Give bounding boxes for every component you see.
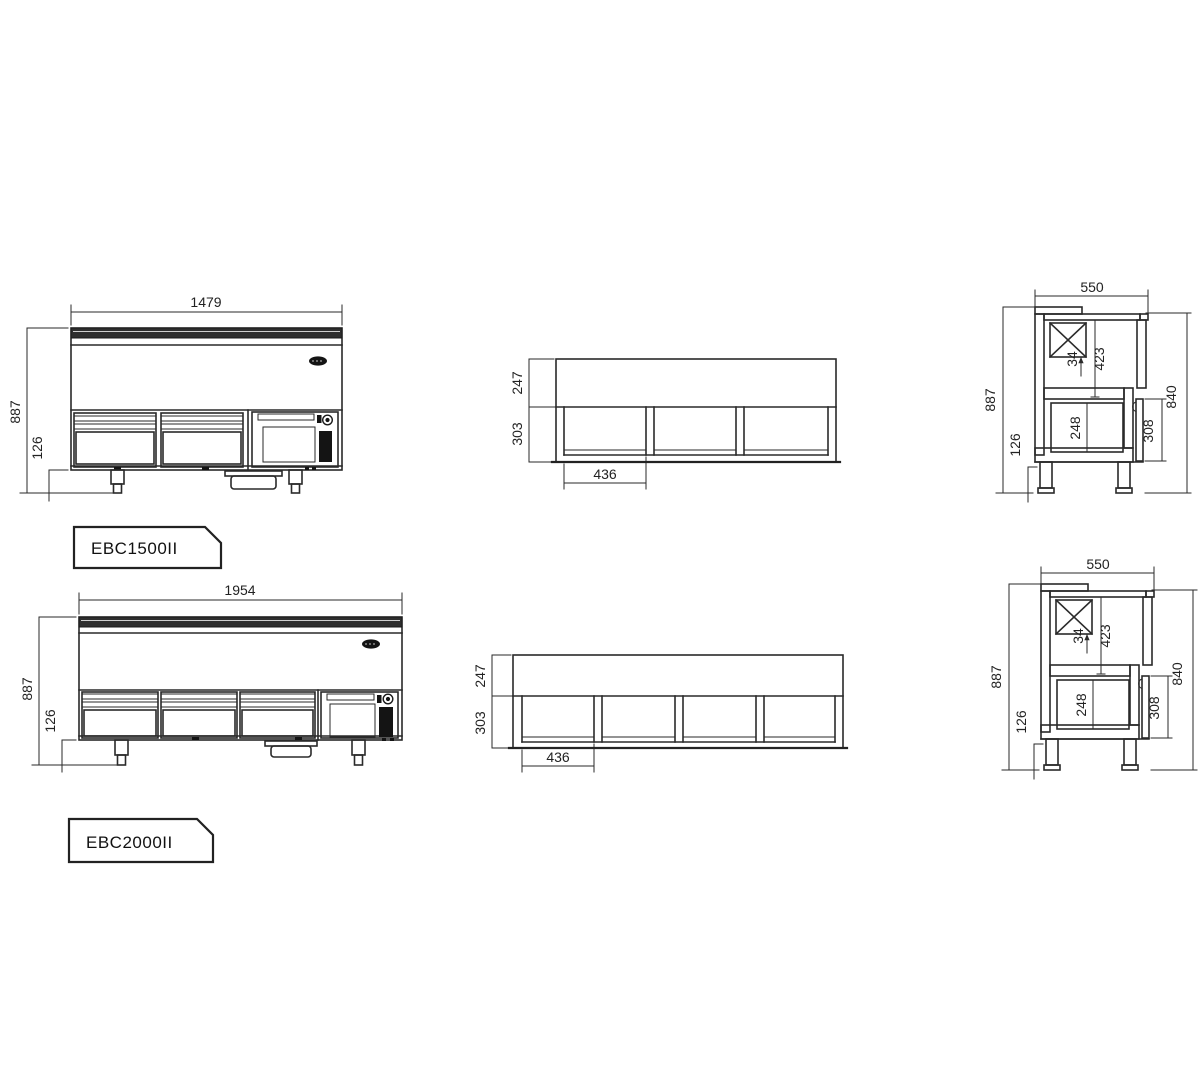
plan-dimension-lines (529, 359, 646, 489)
dim-door-height: 308 (1140, 419, 1156, 443)
technical-drawing-page: 1479 887 126 (0, 0, 1200, 1080)
dim-height-label: 887 (7, 400, 23, 424)
drawer-column-2 (161, 692, 237, 738)
compressor-compartment (114, 410, 338, 470)
dim-height: 887 (982, 388, 998, 412)
dim-well-depth: 303 (509, 422, 525, 446)
ebc2000-front-view: 1954 887 126 (19, 582, 402, 772)
ebc1500-front-view: 1479 887 126 (7, 294, 342, 501)
ebc1500-plan-view: 247 303 436 (509, 359, 840, 489)
switch (377, 695, 382, 703)
cabinet-body (71, 328, 342, 470)
drawer-column-1 (82, 692, 158, 738)
vent-slot-strip (258, 414, 314, 420)
drawer-column-1 (74, 413, 156, 467)
ebc1500-side-view: 550 887 126 840 34 423 248 308 (982, 279, 1191, 502)
dim-leg-label: 126 (29, 436, 45, 460)
drawer-column-2 (161, 413, 243, 467)
dim-depth: 550 (1080, 279, 1104, 295)
dim-height: 887 (988, 665, 1004, 689)
dim-inner-height: 840 (1163, 385, 1179, 409)
ebc2000-model-label: EBC2000II (69, 819, 213, 862)
dim-evap-clearance: 34 (1064, 351, 1080, 367)
dim-legs: 126 (1007, 433, 1023, 457)
dim-height-label: 887 (19, 677, 35, 701)
vent-grille (263, 427, 315, 462)
dim-leg-label: 126 (42, 709, 58, 733)
dim-depth: 550 (1086, 556, 1110, 572)
legs-and-drain (111, 470, 302, 493)
dim-drawer-cavity: 248 (1067, 416, 1083, 440)
condenser-panel (319, 431, 332, 462)
dimension-drawing: 1479 887 126 (0, 0, 1200, 1080)
model-name: EBC2000II (86, 833, 173, 852)
ebc2000-side-view: 550 887 126 840 34 423 248 308 (988, 556, 1197, 779)
dim-door-height: 308 (1146, 696, 1162, 720)
drawer-column-3 (240, 692, 315, 738)
condenser-panel (379, 707, 393, 737)
legs-and-drain (115, 740, 365, 765)
dim-bay-width: 436 (546, 749, 570, 765)
ebc2000-plan-view: 247 303 436 (472, 655, 847, 772)
switch (317, 415, 322, 423)
dim-evap-clearance: 34 (1070, 628, 1086, 644)
vent-slot-strip (327, 694, 374, 700)
dim-bay-width: 436 (593, 466, 617, 482)
dim-upper-cavity: 423 (1091, 347, 1107, 371)
dim-drawer-cavity: 248 (1073, 693, 1089, 717)
dim-legs: 126 (1013, 710, 1029, 734)
dim-width-label: 1479 (190, 294, 221, 310)
compressor-compartment (192, 690, 398, 741)
dim-inner-height: 840 (1169, 662, 1185, 686)
plan-body (509, 655, 847, 748)
dim-top-depth: 247 (509, 371, 525, 395)
ebc1500-model-label: EBC1500II (74, 527, 221, 568)
plan-body (552, 359, 840, 462)
dim-width-label: 1954 (224, 582, 255, 598)
model-name: EBC1500II (91, 539, 178, 558)
dim-upper-cavity: 423 (1097, 624, 1113, 648)
plan-dimension-lines (492, 655, 594, 772)
dim-well-depth: 303 (472, 711, 488, 735)
vent-grille (330, 704, 375, 737)
dim-top-depth: 247 (472, 664, 488, 688)
